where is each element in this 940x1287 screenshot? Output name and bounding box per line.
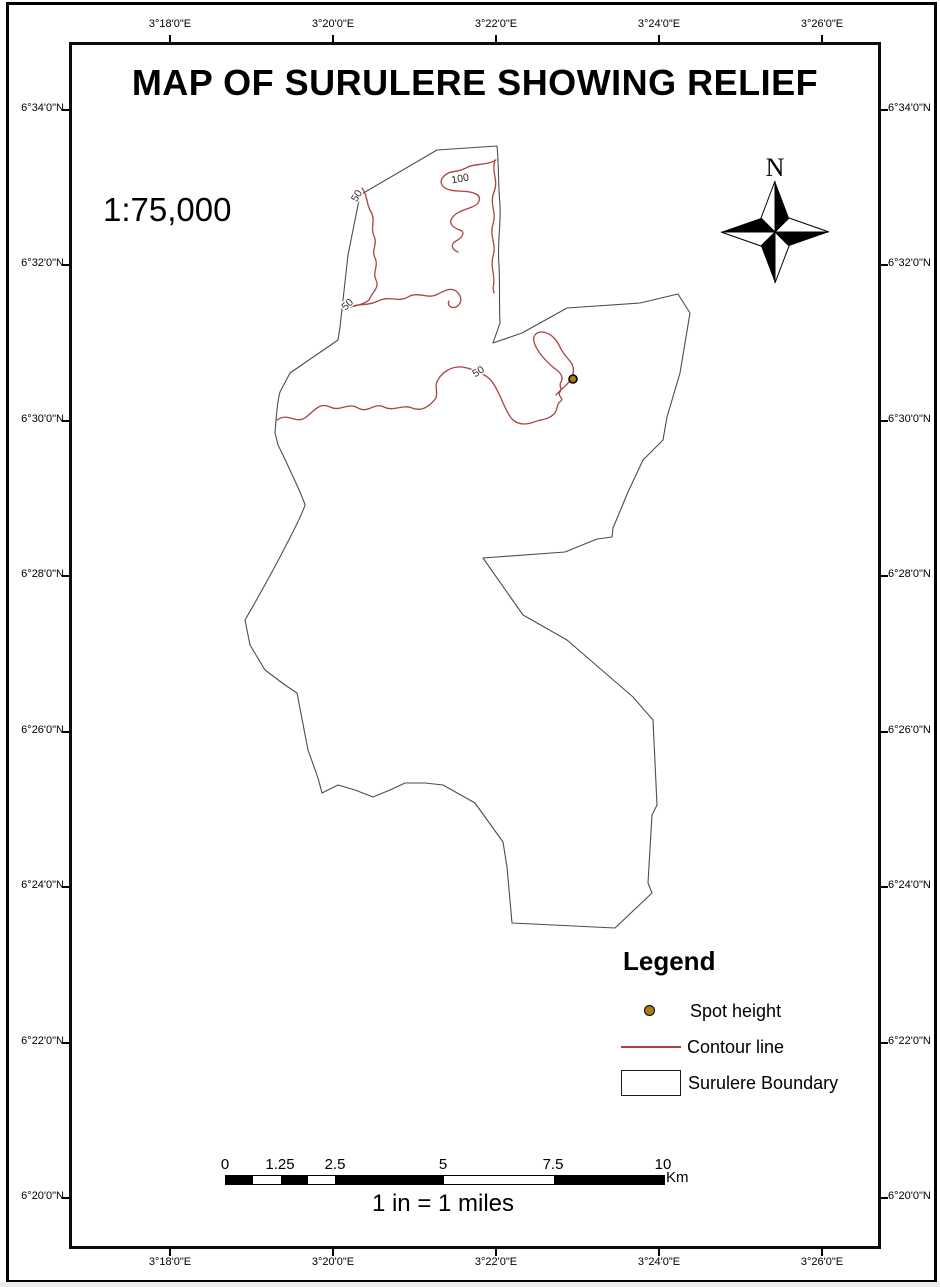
legend-item-label: Surulere Boundary [688, 1072, 838, 1094]
contour-line [342, 188, 377, 310]
scalebar-segment [335, 1176, 444, 1184]
legend-contour-line-icon [621, 1046, 681, 1048]
contour-line [277, 332, 573, 424]
contour-line [342, 289, 461, 310]
contour-label: 100 [450, 172, 469, 187]
scalebar-label: 7.5 [523, 1156, 583, 1173]
spot-height-dot [569, 375, 577, 383]
north-letter: N [766, 153, 785, 182]
contour-line [492, 160, 496, 293]
scalebar [225, 1175, 665, 1185]
scalebar-segment [554, 1176, 664, 1184]
scalebar-unit: Km [666, 1169, 689, 1186]
compass-rose-icon: N [721, 153, 829, 283]
scalebar-label: 0 [195, 1156, 255, 1173]
surulere-boundary-path [245, 146, 690, 928]
scalebar-label: 1.25 [250, 1156, 310, 1173]
scalebar-segment [226, 1176, 253, 1184]
legend-heading: Legend [623, 946, 715, 977]
scalebar-label: 2.5 [305, 1156, 365, 1173]
scalebar-caption: 1 in = 1 miles [293, 1190, 593, 1218]
contour-line [441, 160, 496, 252]
legend-item-label: Spot height [690, 1000, 781, 1022]
scalebar-label: 5 [413, 1156, 473, 1173]
legend-boundary-icon [621, 1070, 681, 1096]
scalebar-segment [281, 1176, 308, 1184]
contour-label: 50 [470, 364, 486, 380]
legend-item-label: Contour line [687, 1036, 784, 1058]
legend-spot-height-icon [644, 1005, 655, 1016]
